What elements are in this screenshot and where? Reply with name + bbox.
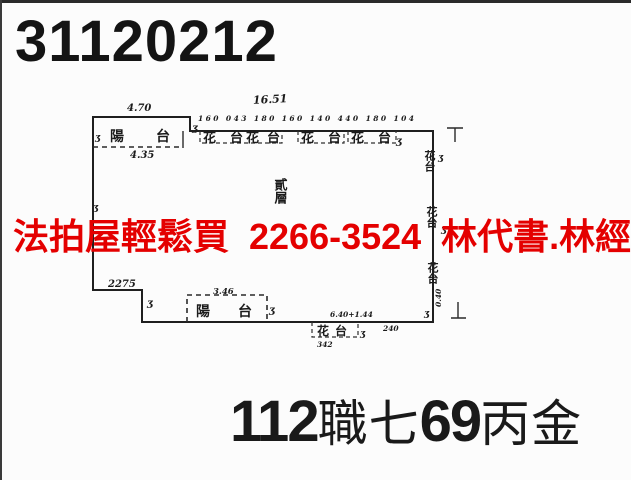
- measure-squiggle: ʒ: [268, 305, 276, 316]
- dim-label: 6.40+1.44: [330, 310, 373, 319]
- property-code-segment: 職七: [318, 396, 420, 452]
- measure-squiggle: ʒ: [146, 298, 154, 309]
- dim-label: 0.40: [434, 288, 443, 307]
- measure-squiggle: ʒ: [94, 133, 101, 143]
- bottom-balcony-label: 陽 台: [196, 303, 252, 319]
- corner-mark-bottom-right: [451, 302, 466, 318]
- floor-name-label: 貳層: [273, 177, 288, 205]
- top-dims-row: 160 043 180 160 140 440 180 104: [198, 114, 414, 123]
- dim-label: 4.70: [127, 103, 151, 114]
- dim-label: 4.35: [130, 150, 154, 161]
- dim-label: 240: [382, 324, 399, 333]
- dim-label: 2275: [107, 279, 136, 290]
- measure-squiggle: ʒ: [423, 309, 430, 319]
- property-code-segment: 69: [420, 389, 481, 454]
- flowerbed-label-vertical: 花台: [423, 149, 436, 173]
- measure-squiggle: ʒ: [359, 329, 366, 339]
- property-code-segment: 丙金: [480, 396, 582, 452]
- measure-squiggle: ʒ: [437, 153, 444, 163]
- case-number: 31120212: [15, 8, 278, 75]
- top-balcony-label: 陽 台: [110, 128, 170, 144]
- measure-squiggle: ʒ: [191, 123, 199, 134]
- scan-border-top: [0, 0, 631, 3]
- overall-width-dim: 16.51: [253, 92, 288, 107]
- ad-overlay-text: 法拍屋輕鬆買 2266-3524 林代書.林經理: [13, 217, 631, 257]
- measure-squiggle: ʒ: [92, 203, 99, 213]
- scan-border-left: [0, 0, 2, 480]
- dim-label: 342: [317, 340, 333, 349]
- corner-mark-top-right: [447, 128, 463, 142]
- flowerbed-label-vertical: 花台: [426, 261, 439, 285]
- scanned-document-page: 31120212 4.70 陽 台 4.35 16.51 160 043 180…: [0, 0, 631, 480]
- dim-label: 3.46: [213, 287, 234, 297]
- flowerbed-label: 花台: [246, 130, 280, 145]
- flowerbed-label: 花台: [317, 323, 347, 338]
- measure-squiggle: ʒ: [395, 136, 403, 147]
- property-code: 112職七69丙金: [230, 384, 582, 456]
- property-code-segment: 112: [230, 389, 318, 454]
